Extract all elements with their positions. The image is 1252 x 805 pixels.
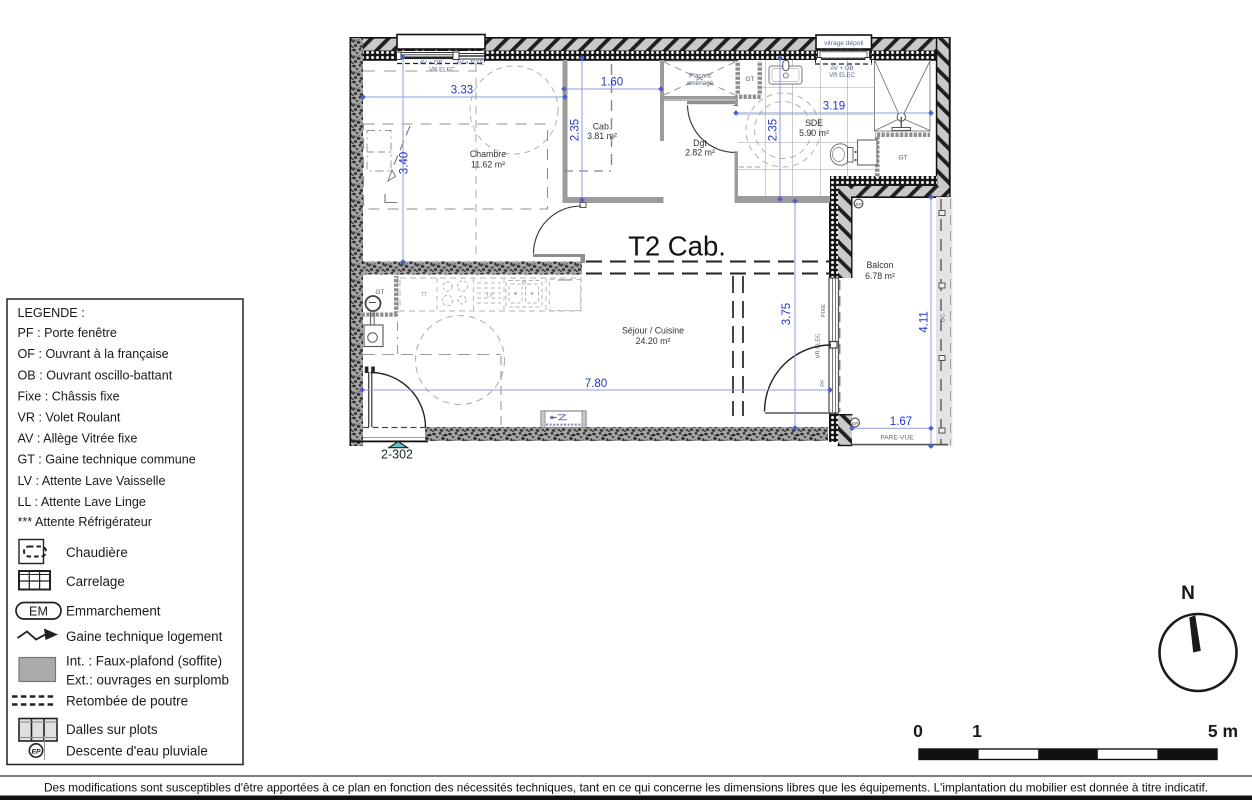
svg-text:Séjour / Cuisine: Séjour / Cuisine [622, 326, 684, 336]
svg-text:Descente d'eau pluviale: Descente d'eau pluviale [66, 744, 208, 759]
svg-text:EP: EP [852, 421, 859, 426]
svg-text:7.80: 7.80 [585, 378, 607, 390]
svg-text:2.82 m²: 2.82 m² [685, 148, 715, 158]
svg-text:Ext.: ouvrages en surplomb: Ext.: ouvrages en surplomb [66, 673, 229, 688]
svg-text:1: 1 [972, 721, 982, 741]
svg-text:*** Attente Réfrigérateur: *** Attente Réfrigérateur [18, 515, 152, 529]
svg-text:3.75: 3.75 [781, 303, 793, 325]
svg-text:OF : Ouvrant à la française: OF : Ouvrant à la française [18, 347, 169, 361]
svg-text:GT: GT [898, 155, 907, 162]
svg-text:OB : Ouvrant oscillo-battant: OB : Ouvrant oscillo-battant [18, 369, 173, 383]
svg-text:Dgt: Dgt [693, 138, 707, 148]
svg-text:Dalles sur plots: Dalles sur plots [66, 722, 158, 737]
svg-text:PF : Porte fenêtre: PF : Porte fenêtre [18, 326, 117, 340]
svg-text:SDE: SDE [805, 118, 823, 128]
svg-text:5.90 m²: 5.90 m² [799, 128, 829, 138]
svg-text:Placard: Placard [689, 73, 711, 80]
svg-text:FIXE: FIXE [821, 304, 827, 317]
svg-text:aménagé: aménagé [687, 80, 714, 87]
svg-text:LV: LV [487, 293, 494, 299]
svg-text:GT: GT [745, 76, 754, 83]
svg-text:GC: GC [941, 314, 947, 323]
svg-text:2-302: 2-302 [381, 448, 413, 462]
svg-text:Gaine technique logement: Gaine technique logement [66, 629, 223, 644]
svg-text:AV + OB: AV + OB [419, 61, 442, 67]
svg-text:VR : Volet Roulant: VR : Volet Roulant [18, 411, 121, 425]
svg-text:Chambre: Chambre [470, 149, 506, 159]
svg-text:11.62 m²: 11.62 m² [471, 160, 505, 170]
svg-text:6.78 m²: 6.78 m² [865, 271, 895, 281]
svg-text:EM: EM [29, 605, 48, 619]
svg-text:0: 0 [913, 721, 923, 741]
svg-text:LEGENDE :: LEGENDE : [18, 306, 85, 320]
svg-text:N: N [1181, 583, 1195, 604]
svg-text:TT: TT [421, 292, 428, 298]
svg-text:5 m: 5 m [1208, 721, 1238, 741]
svg-text:LL : Attente Lave Linge: LL : Attente Lave Linge [18, 495, 146, 509]
svg-text:EP: EP [31, 749, 41, 756]
svg-text:Des modifications sont suscept: Des modifications sont susceptibles d'êt… [44, 782, 1208, 795]
svg-text:Carrelage: Carrelage [66, 574, 125, 589]
svg-text:VR ELEC: VR ELEC [829, 73, 855, 79]
svg-text:PF: PF [821, 379, 827, 387]
svg-text:GT: GT [375, 289, 384, 296]
svg-text:vitrage dépoli: vitrage dépoli [824, 40, 864, 47]
svg-text:EP: EP [855, 202, 862, 207]
svg-text:Fixe : Châssis fixe: Fixe : Châssis fixe [18, 390, 120, 404]
svg-text:3.81 m²: 3.81 m² [587, 131, 617, 141]
svg-text:AV + OB: AV + OB [830, 66, 853, 72]
svg-text:AV : Allège Vitrée fixe: AV : Allège Vitrée fixe [18, 432, 138, 446]
svg-text:2.35: 2.35 [570, 119, 582, 141]
svg-text:2.35: 2.35 [768, 119, 780, 141]
svg-text:LV : Attente Lave Vaisselle: LV : Attente Lave Vaisselle [18, 474, 166, 488]
svg-text:3.19: 3.19 [823, 101, 845, 113]
svg-text:3.33: 3.33 [451, 85, 473, 97]
svg-text:1.60: 1.60 [601, 77, 623, 89]
svg-text:Balcon: Balcon [867, 260, 894, 270]
svg-text:24.20 m²: 24.20 m² [636, 336, 671, 346]
svg-text:Chaudière: Chaudière [66, 545, 128, 560]
svg-text:AV + FIXE: AV + FIXE [456, 61, 484, 67]
svg-text:4.11: 4.11 [919, 311, 931, 333]
svg-text:3.40: 3.40 [399, 152, 411, 174]
svg-text:Emmarchement: Emmarchement [66, 604, 161, 619]
svg-text:Retombée de poutre: Retombée de poutre [66, 694, 188, 709]
svg-text:GT : Gaine technique commune: GT : Gaine technique commune [18, 453, 196, 467]
svg-text:T2 Cab.: T2 Cab. [628, 231, 726, 262]
svg-text:PARE-VUE: PARE-VUE [880, 435, 914, 442]
svg-text:Cab.: Cab. [593, 122, 612, 132]
svg-text:Int. : Faux-plafond (soffite): Int. : Faux-plafond (soffite) [66, 654, 222, 669]
svg-text:1.67: 1.67 [890, 416, 912, 428]
